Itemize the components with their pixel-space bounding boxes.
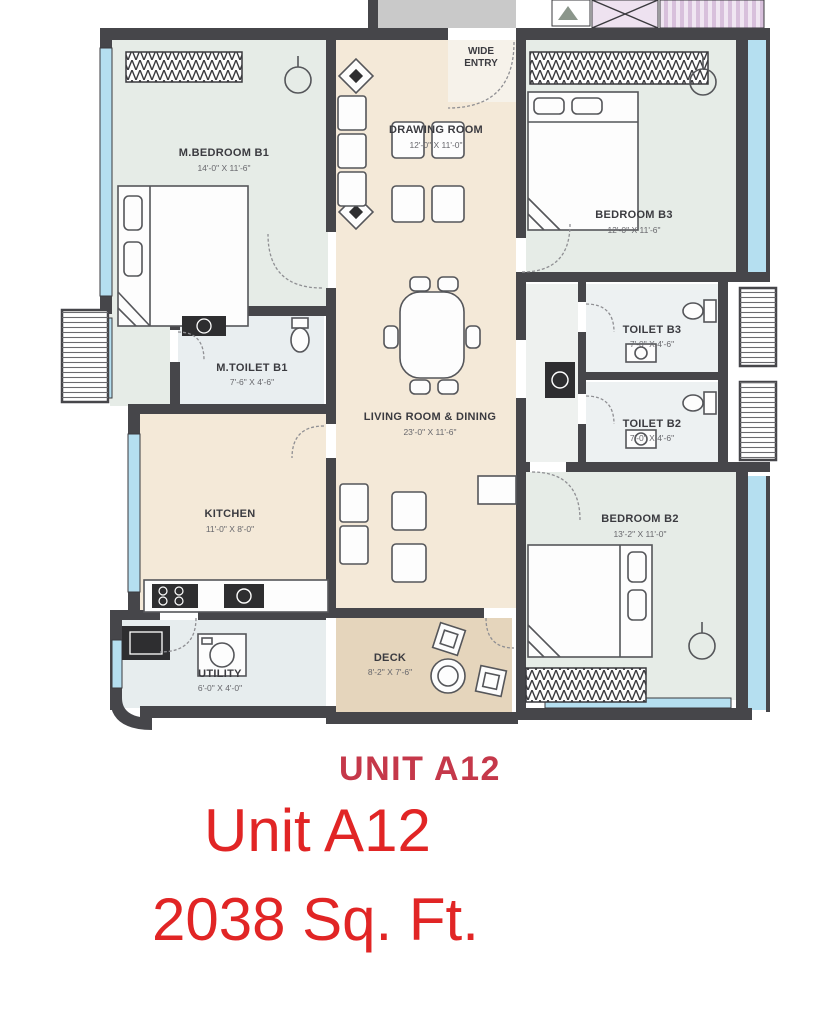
sofa-icon (338, 96, 366, 206)
room-label-bedroom-b2: BEDROOM B2 (601, 513, 679, 525)
wash-basin-icon (545, 362, 575, 398)
room-label-kitchen: KITCHEN (205, 508, 256, 520)
window (128, 434, 140, 592)
deck-table-icon (431, 659, 465, 693)
room-dims-deck: 8'-2" X 7'-6" (368, 667, 412, 677)
entry-label-line2: ENTRY (464, 58, 498, 69)
floor-plan: WIDE ENTRY M.BEDROOM B1 14'-0" X 11'-6" … (0, 0, 840, 745)
balcony-strip-bottom-right (748, 476, 766, 710)
room-dims-drawing: 12'-0" X 11'-0" (409, 140, 462, 150)
wardrobe-icon (526, 668, 646, 702)
room-label-toilet-b3: TOILET B3 (623, 324, 682, 336)
bed-icon (118, 186, 248, 326)
room-label-drawing: DRAWING ROOM (389, 124, 483, 136)
room-label-toilet-b2: TOILET B2 (623, 418, 682, 430)
room-dims-kitchen: 11'-0" X 8'-0" (206, 524, 254, 534)
room-dims-utility: 6'-0" X 4'-0" (198, 683, 242, 693)
room-dims-bedroom-b2: 13'-2" X 11'-0" (613, 529, 666, 539)
wc-icon (291, 318, 309, 352)
floor-plan-page: WIDE ENTRY M.BEDROOM B1 14'-0" X 11'-6" … (0, 0, 840, 1036)
wardrobe-icon (126, 52, 242, 82)
room-dims-m-toilet-b1: 7'-6" X 4'-6" (230, 377, 274, 387)
bed-icon (528, 545, 652, 657)
lift-lobby-block (552, 0, 764, 28)
room-label-m-toilet-b1: M.TOILET B1 (216, 362, 288, 374)
wardrobe-icon (530, 52, 708, 84)
room-dims-m-bedroom-b1: 14'-0" X 11'-6" (197, 163, 250, 173)
corridor-block (368, 0, 516, 28)
room-dims-bedroom-b3: 12'-0" X 11'-6" (607, 225, 660, 235)
room-dims-toilet-b2: 7'-0" X 4'-6" (630, 433, 674, 443)
adjacent-unit-hatch (660, 0, 764, 28)
unit-area: 2038 Sq. Ft. (152, 890, 479, 950)
stove-icon (152, 584, 198, 608)
room-label-m-bedroom-b1: M.BEDROOM B1 (179, 147, 269, 159)
entry-label-line1: WIDE (468, 46, 494, 57)
room-dims-toilet-b3: 7'-0" X 4'-6" (630, 339, 674, 349)
room-label-deck: DECK (374, 652, 406, 664)
deck-chair-icon (476, 666, 507, 697)
sink-icon (224, 584, 264, 608)
kitchen-counter (144, 580, 328, 612)
room-label-bedroom-b3: BEDROOM B3 (595, 209, 673, 221)
utility-cabinet (122, 626, 170, 660)
unit-plan-caption: UNIT A12 (0, 752, 840, 786)
unit-title: Unit A12 (204, 801, 431, 861)
room-label-living: LIVING ROOM & DINING (364, 411, 497, 423)
room-label-utility: UTILITY (198, 668, 242, 680)
window (100, 48, 112, 296)
window (112, 640, 122, 688)
room-dims-living: 23'-0" X 11'-6" (403, 427, 456, 437)
balcony-strip-top-right (748, 40, 766, 276)
